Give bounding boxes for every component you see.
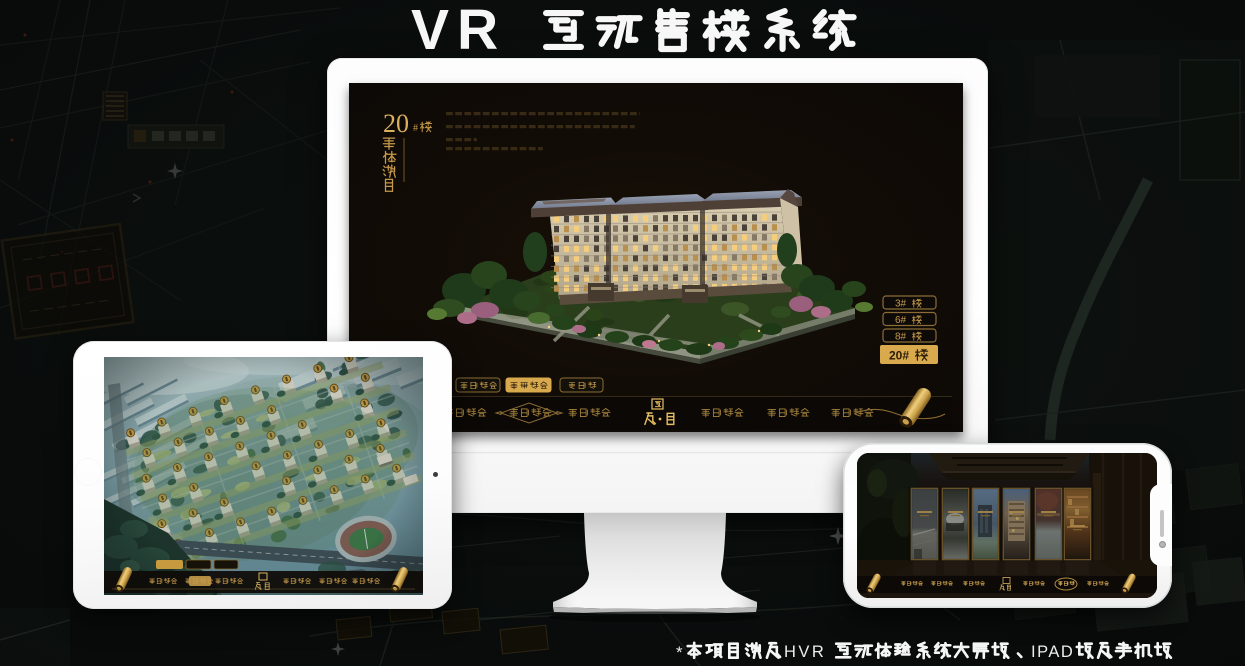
svg-text:#: # [413, 123, 418, 134]
svg-text:*: * [676, 643, 683, 662]
svg-text:20: 20 [383, 109, 409, 138]
svg-text:3#: 3# [895, 299, 907, 310]
svg-text:20#: 20# [889, 349, 909, 363]
svg-text:VR: VR [411, 2, 506, 58]
svg-text:6#: 6# [895, 315, 907, 326]
svg-text:HVR: HVR [784, 643, 826, 661]
svg-text:IPAD: IPAD [1031, 643, 1074, 661]
svg-text:8#: 8# [895, 332, 907, 343]
